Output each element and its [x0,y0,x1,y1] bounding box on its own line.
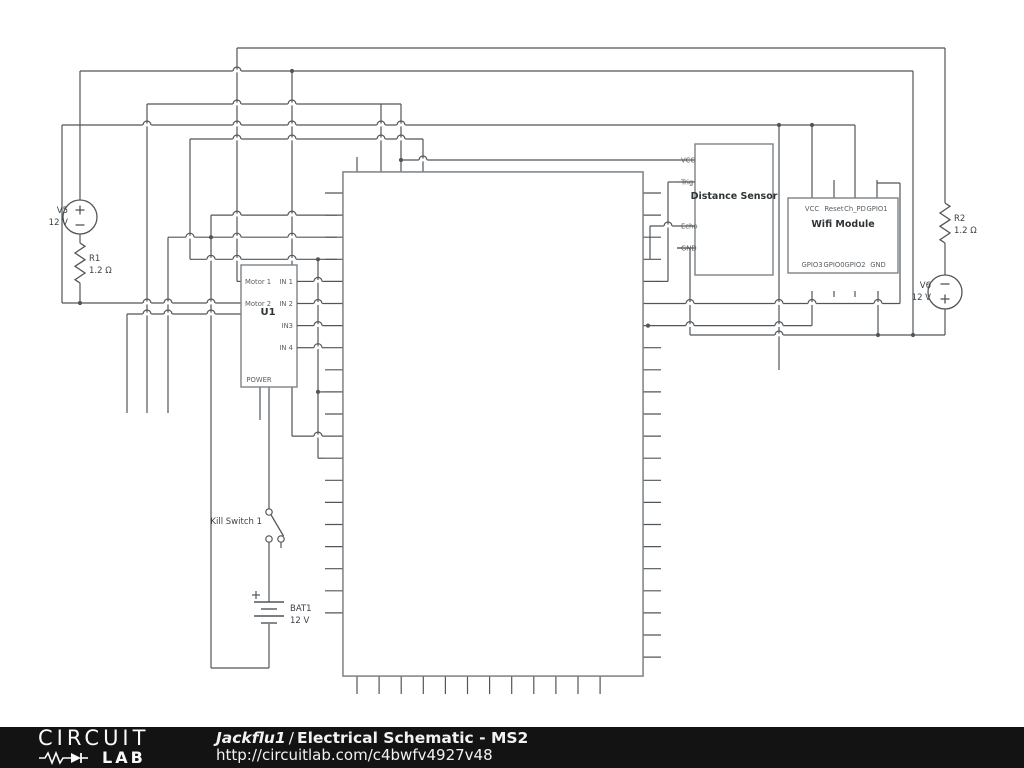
pin-label: IN 4 [279,344,293,352]
resistor-r2-ref: R2 [954,214,965,224]
resistor-r1-value: 1.2 Ω [89,266,112,276]
hop-mask [207,302,215,305]
pin-label: IN 1 [279,278,293,286]
junction-dot [399,158,403,162]
junction-dot [316,257,320,261]
hop-mask [233,258,241,261]
hop-mask [419,159,427,162]
resistor-r2-zigzag [940,203,950,243]
hop-mask [233,236,241,239]
hop-mask [397,124,405,127]
hop-mask [233,138,241,141]
hop-mask [288,124,296,127]
hop-mask [143,313,151,316]
hop-mask [686,324,694,327]
schematic-name: Electrical Schematic - MS2 [297,729,528,747]
hop-mask [288,258,296,261]
hop-mask [664,225,672,228]
pin-label: GPIO1 [866,205,887,213]
hop-mask [186,236,194,239]
voltage-source-v5-circle [63,200,97,234]
junction-dot [646,324,650,328]
voltage-source-v6-value: 12 V [912,293,932,303]
wifi-module: VCCResetCh_PDGPIO1GPIO3GPIO0GPIO2GNDWifi… [788,198,898,273]
hop-mask [233,70,241,73]
junction-dot [876,333,880,337]
pin-label: GPIO0 [823,261,844,269]
hop-mask [775,334,783,337]
battery-bat1: BAT112 V [252,591,312,626]
voltage-source-v6-circle [928,275,962,309]
title-separator: / [286,729,297,747]
arduino-box [343,172,643,676]
hop-mask [377,138,385,141]
hop-mask [377,124,385,127]
voltage-source-v5-value: 12 V [49,218,69,228]
author-link[interactable]: Jackflu1 [216,729,286,747]
schematic-canvas: RESETGNDGNDGNDA0A1A2A3A4A5A6A7A8A9A10A11… [0,0,1024,727]
motor-driver-u1: Motor 1Motor 2IN 1IN 2IN3IN 4POWERU1 [241,265,311,387]
hop-mask [397,138,405,141]
pin-label: GPIO3 [801,261,822,269]
junction-dot [911,333,915,337]
switch-blade [271,515,284,536]
hop-mask [775,324,783,327]
switch-terminal [266,536,272,542]
switch-terminal [278,536,284,542]
junction-dot [78,301,82,305]
pin-label: IN 2 [279,300,293,308]
footer-title-block: Jackflu1/Electrical Schematic - MS2 http… [216,729,528,765]
resistor-r1-zigzag [75,243,85,283]
hop-mask [233,124,241,127]
hop-mask [808,302,816,305]
hop-mask [314,324,322,327]
hop-mask [314,280,322,283]
pin-label: POWER [246,376,271,384]
junction-dot [810,123,814,127]
hop-mask [314,435,322,438]
logo-schematic-icon [38,750,102,766]
bat1-ref: BAT1 [290,604,312,614]
kill-switch-1: Kill Switch 1 [210,509,284,548]
pin-label: GND [870,261,886,269]
switch-terminal [266,509,272,515]
hop-mask [686,302,694,305]
junction-dot [209,235,213,239]
voltage-source-v6-ref: V6 [920,281,931,291]
bat1-value: 12 V [290,616,310,626]
pin-label: VCC [805,205,819,213]
hop-mask [143,302,151,305]
schematic-url[interactable]: http://circuitlab.com/c4bwfv4927v48 [216,747,528,765]
pin-label: Motor 1 [245,278,271,286]
hop-mask [874,302,882,305]
pin-label: Reset [825,205,844,213]
hop-mask [775,302,783,305]
distance-sensor-title: Distance Sensor [691,191,778,202]
hop-mask [288,103,296,106]
logo-text-circuit: CIRCUIT [38,728,149,749]
u1-ref: U1 [260,307,275,318]
resistor-r2-value: 1.2 Ω [954,226,977,236]
pin-label: GND [681,244,697,252]
hop-mask [164,313,172,316]
pin-label: IN3 [282,322,293,330]
pin-label: Trig [680,178,693,186]
junction-dot [777,123,781,127]
voltage-source-v5-ref: V5 [57,206,68,216]
hop-mask [288,138,296,141]
hop-mask [143,124,151,127]
hop-mask [207,258,215,261]
hop-mask [288,236,296,239]
voltage-source-v6: V612 V [912,275,962,309]
pin-label: Echo [681,222,698,230]
resistor-r1-ref: R1 [89,254,100,264]
junction-dot [316,390,320,394]
kill-switch-label: Kill Switch 1 [210,517,262,527]
wifi-module-title: Wifi Module [811,219,874,230]
resistor-r1: R11.2 Ω [75,243,112,283]
junction-dot [290,69,294,73]
distance-sensor-box [695,144,773,275]
pin-label: Ch_PD [844,205,866,213]
hop-mask [314,302,322,305]
schematic-title: Jackflu1/Electrical Schematic - MS2 [216,729,528,747]
footer-bar: CIRCUIT LAB Jackflu1/Electrical Schemati… [0,727,1024,768]
voltage-source-v5: V512 V [49,200,97,234]
components-layer: RESETGNDGNDGNDA0A1A2A3A4A5A6A7A8A9A10A11… [49,144,978,694]
resistor-r2: R21.2 Ω [940,203,977,243]
logo-text-lab: LAB [102,750,146,766]
hop-mask [233,103,241,106]
hop-mask [207,313,215,316]
circuitlab-logo[interactable]: CIRCUIT LAB [38,728,149,766]
pin-label: GPIO2 [844,261,865,269]
pin-label: VCC [681,156,695,164]
hop-mask [233,214,241,217]
hop-mask [314,346,322,349]
hop-mask [164,302,172,305]
hop-mask [288,214,296,217]
distance-sensor: VCCTrigEchoGNDDistance Sensor [677,144,778,275]
